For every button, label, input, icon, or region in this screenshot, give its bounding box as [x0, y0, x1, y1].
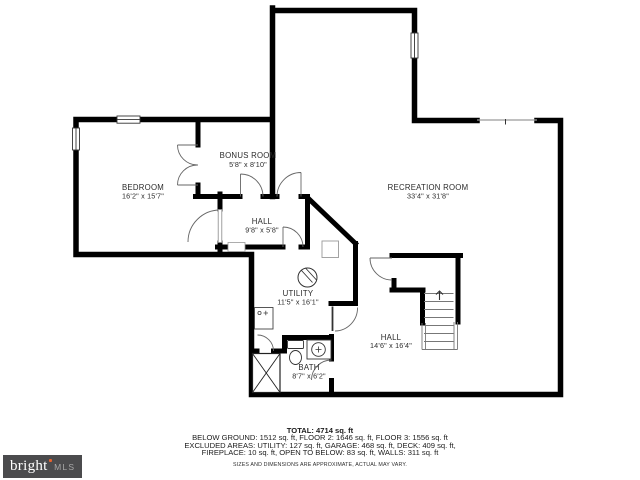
- disclaimer-text: SIZES AND DIMENSIONS ARE APPROXIMATE, AC…: [0, 462, 640, 468]
- bedroom-top-window-icon: [117, 116, 140, 123]
- room-dims-hall-lower: 14'6" x 16'4": [370, 341, 412, 350]
- room-dims-bonus-room: 5'8" x 8'10": [229, 160, 267, 169]
- recreation-door-icon: [277, 173, 301, 197]
- toilet-icon: [288, 341, 304, 365]
- bedroom-door-leaf: [218, 210, 222, 243]
- hvac-unit-icon: [322, 241, 339, 258]
- stair-direction-arrow-icon: [436, 291, 443, 300]
- room-dims-bath: 8'7" x 6'2": [292, 372, 326, 381]
- excluded-areas-text-2: FIREPLACE: 10 sq. ft, OPEN TO BELOW: 83 …: [0, 449, 640, 456]
- room-dims-hall-upper: 9'8" x 5'8": [245, 226, 279, 235]
- laundry-tub-icon: [255, 308, 274, 330]
- floor-plan: BEDROOM 16'2" x 15'7" BONUS ROOM 5'8" x …: [0, 0, 640, 480]
- water-heater-icon: [298, 268, 317, 287]
- bedroom-left-window-icon: [73, 128, 80, 150]
- opening-threshold: [228, 243, 245, 252]
- utility-hall-door-icon: [335, 308, 358, 332]
- room-dims-utility: 11'5" x 16'1": [277, 298, 319, 307]
- brightmls-logo: bright MLS: [3, 455, 82, 478]
- closet-door-upper-icon: [178, 145, 199, 165]
- logo-suffix-text: MLS: [54, 462, 75, 472]
- bedroom-door-icon: [188, 210, 220, 242]
- fixtures: [253, 241, 339, 393]
- room-dims-recreation: 33'4" x 31'8": [407, 192, 449, 201]
- room-label-bonus-room: BONUS ROOM: [220, 151, 277, 160]
- area-summary: TOTAL: 4714 sq. ft BELOW GROUND: 1512 sq…: [0, 427, 640, 468]
- hall-utility-door-icon: [283, 227, 303, 247]
- bonus-room-door-icon: [241, 174, 264, 197]
- sliding-door-icon: [477, 119, 537, 125]
- logo-brand-text: bright: [10, 455, 48, 477]
- floorplan-page: BEDROOM 16'2" x 15'7" BONUS ROOM 5'8" x …: [0, 0, 640, 480]
- windows: [73, 33, 419, 150]
- closet-door-lower-icon: [178, 165, 199, 185]
- stair-treads: [422, 294, 458, 350]
- room-dims-bedroom: 16'2" x 15'7": [122, 192, 164, 201]
- logo-spark-icon: [49, 459, 53, 463]
- shower-icon: [253, 354, 281, 393]
- recreation-window-icon: [411, 33, 418, 58]
- stairs: [422, 291, 458, 350]
- stair-closet-door-icon: [370, 258, 392, 280]
- sink-icon: [307, 340, 331, 359]
